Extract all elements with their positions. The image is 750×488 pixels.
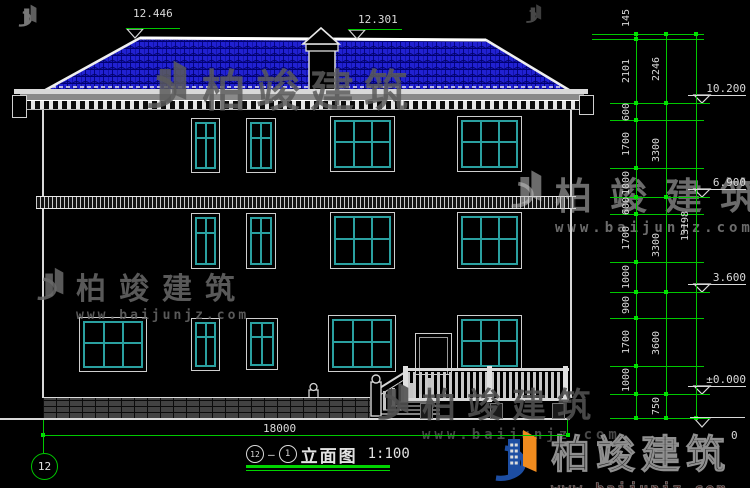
title-underline-thin — [246, 470, 390, 471]
watermark-logo-icon — [372, 378, 416, 422]
window-sash — [250, 122, 272, 169]
watermark-brand: 柏竣建筑 — [555, 166, 750, 220]
window-mullion — [85, 342, 141, 344]
extension-line — [592, 34, 704, 35]
window — [330, 212, 395, 269]
cornice-left-return — [12, 95, 27, 118]
window — [191, 118, 220, 173]
window-sash — [195, 322, 216, 367]
window-mullion — [336, 238, 389, 240]
dim-label: 1700 — [622, 226, 632, 250]
dim-tick — [634, 316, 638, 320]
watermark-text-group: 柏竣建筑 www.baijunjz.com — [76, 264, 249, 323]
elevation-mark-line — [688, 284, 746, 285]
window-sash — [250, 217, 272, 265]
window-mullion — [371, 218, 373, 263]
dim-label: 1000 — [622, 170, 632, 194]
elevation-mark-line — [688, 189, 746, 190]
window-mullion — [252, 137, 270, 139]
dim-label: 1000 — [622, 265, 632, 289]
window-mullion — [352, 321, 354, 366]
dim-label: 900 — [622, 296, 632, 314]
window-sash — [250, 322, 274, 366]
elevation-mark-value: ±0.000 — [706, 374, 746, 385]
dim-tick — [634, 212, 638, 216]
width-dimension-line — [43, 435, 568, 436]
dim-label: 1700 — [622, 132, 632, 156]
window-sash — [195, 122, 216, 169]
brand-url: www.baijunjz.com — [551, 480, 731, 488]
title-underline-thick — [246, 465, 390, 468]
window-mullion — [197, 336, 214, 338]
window — [328, 315, 396, 372]
dim-tick — [664, 392, 668, 396]
extension-line — [610, 168, 704, 169]
dim-tick — [664, 416, 668, 420]
window-mullion — [353, 122, 355, 166]
extension-line — [610, 292, 710, 293]
window-mullion — [260, 219, 262, 263]
window-sash — [461, 120, 518, 168]
elevation-mark-line — [688, 95, 746, 96]
window — [457, 315, 522, 371]
drawing-title: 12 — 1 立面图 1:100 — [246, 444, 410, 464]
brand-text-group: 柏竣建筑 www.baijunjz.com — [551, 424, 731, 488]
window-mullion — [103, 323, 105, 366]
dim-tick — [634, 290, 638, 294]
watermark-url: www.baijunjz.com — [76, 308, 249, 323]
dim-label: 1700 — [622, 330, 632, 354]
window-sash — [334, 120, 391, 168]
elevation-mark-value: 3.600 — [713, 272, 746, 283]
dim-tick — [664, 32, 668, 36]
window-mullion — [463, 141, 516, 143]
dimension-chain-line — [666, 34, 667, 418]
watermark-fragment — [523, 2, 545, 28]
dim-tick — [694, 32, 698, 36]
title-scale: 1:100 — [368, 446, 410, 462]
elevation-mark-value: 6.900 — [713, 177, 746, 188]
dim-label: 2246 — [652, 56, 662, 80]
window-mullion — [498, 321, 500, 365]
window — [191, 213, 220, 269]
watermark: 柏竣建筑 www.baijunjz.com — [32, 264, 249, 323]
railing-top-rail — [403, 368, 569, 371]
elevation-mark-value: 10.200 — [706, 83, 746, 94]
brand-name: 柏竣建筑 — [551, 424, 731, 480]
string-course-band — [36, 196, 576, 209]
dim-tick — [634, 195, 638, 199]
window-sash — [461, 319, 518, 367]
window-mullion — [353, 218, 355, 263]
axis-leader-line — [43, 436, 44, 453]
dim-label: 600 — [622, 102, 632, 120]
watermark-logo-icon — [487, 424, 547, 484]
dim-tick — [664, 290, 668, 294]
brick-plinth — [43, 397, 370, 420]
window-mullion — [371, 122, 373, 166]
axis-bubble-label: 12 — [38, 460, 51, 473]
window-mullion — [122, 323, 124, 366]
window-mullion — [261, 324, 263, 364]
window-mullion — [463, 238, 516, 240]
elevation-mark-line — [690, 417, 745, 418]
extension-line — [567, 420, 568, 435]
dim-tick — [634, 101, 638, 105]
watermark-fragment — [15, 2, 41, 32]
dim-label: 145 — [622, 9, 632, 27]
extension-line — [610, 262, 704, 263]
watermark: 柏竣建筑 — [140, 55, 418, 119]
elevation-mark-underline — [348, 29, 402, 30]
dimension-chain-line — [636, 34, 637, 418]
window-mullion — [205, 124, 207, 167]
title-separator: — — [268, 448, 275, 461]
window-mullion — [463, 340, 516, 342]
extension-line — [43, 420, 44, 435]
watermark-text-group: 柏竣建筑 — [202, 55, 418, 119]
watermark-logo-icon — [505, 166, 549, 210]
window-mullion — [252, 336, 272, 338]
window — [79, 317, 147, 372]
total-height-dimension: 13198 — [681, 211, 691, 241]
extension-line — [610, 318, 704, 319]
elevation-mark-value: 12.446 — [133, 8, 173, 19]
window — [457, 116, 522, 172]
dim-label: 3300 — [652, 232, 662, 256]
dim-tick — [634, 364, 638, 368]
window-mullion — [205, 219, 207, 263]
extension-line — [610, 394, 710, 395]
dim-label: 600 — [622, 196, 632, 214]
window-mullion — [197, 232, 214, 234]
cad-elevation-sheet: 柏竣建筑 柏竣建筑 www.baijunjz.com 柏竣建筑 www.baij… — [0, 0, 750, 488]
elevation-mark-triangle — [349, 30, 365, 39]
dim-label: 2101 — [622, 59, 632, 83]
cornice-right-return — [579, 95, 594, 115]
window-mullion — [197, 137, 214, 139]
extension-line — [592, 39, 704, 40]
elevation-mark-line — [688, 386, 746, 387]
window-sash — [332, 319, 392, 368]
window-mullion — [205, 324, 207, 365]
elevation-mark-underline — [126, 28, 180, 29]
watermark-logo-icon — [32, 264, 70, 302]
dim-tick — [634, 166, 638, 170]
window-sash — [195, 217, 216, 265]
title-ref-left-bubble: 12 — [246, 445, 264, 463]
window-mullion — [371, 321, 373, 366]
title-ref-right-bubble: 1 — [279, 445, 297, 463]
dim-tick — [664, 195, 668, 199]
watermark-brand: 柏竣建筑 — [422, 378, 621, 427]
dim-tick — [634, 32, 638, 36]
elevation-mark-value: 0 — [731, 430, 738, 441]
watermark-logo-icon — [15, 2, 41, 28]
dim-tick — [634, 37, 638, 41]
axis-bubble: 12 — [31, 453, 58, 480]
window-sash — [334, 216, 391, 265]
dim-label: 3600 — [652, 331, 662, 355]
dim-tick — [634, 416, 638, 420]
window-mullion — [260, 124, 262, 167]
window-mullion — [498, 218, 500, 263]
window-mullion — [334, 341, 390, 343]
elevation-mark-value: 12.301 — [358, 14, 398, 25]
window-mullion — [336, 141, 389, 143]
window-mullion — [480, 218, 482, 263]
title-text: 立面图 — [301, 442, 358, 467]
window — [246, 318, 278, 370]
window — [246, 213, 276, 269]
extension-line — [610, 366, 704, 367]
window-sash — [83, 321, 143, 368]
width-dimension-value: 18000 — [263, 423, 296, 434]
window-mullion — [498, 122, 500, 166]
window-mullion — [480, 122, 482, 166]
watermark-brand: 柏竣建筑 — [76, 264, 249, 308]
dim-tick — [664, 101, 668, 105]
window — [330, 116, 395, 172]
window-mullion — [252, 232, 270, 234]
dim-label: 3300 — [652, 138, 662, 162]
dim-tick — [634, 118, 638, 122]
window — [191, 318, 220, 371]
dimension-chain-line — [696, 34, 697, 418]
watermark-brand: 柏竣建筑 — [202, 55, 418, 119]
watermark-logo-icon — [140, 55, 196, 111]
brand-logo: 柏竣建筑 www.baijunjz.com — [487, 424, 731, 488]
window — [246, 118, 276, 173]
watermark-logo-icon — [523, 2, 545, 24]
dim-tick — [634, 392, 638, 396]
window-mullion — [480, 321, 482, 365]
dim-label: 750 — [652, 397, 662, 415]
dim-tick — [634, 260, 638, 264]
dim-label: 1000 — [622, 368, 632, 392]
